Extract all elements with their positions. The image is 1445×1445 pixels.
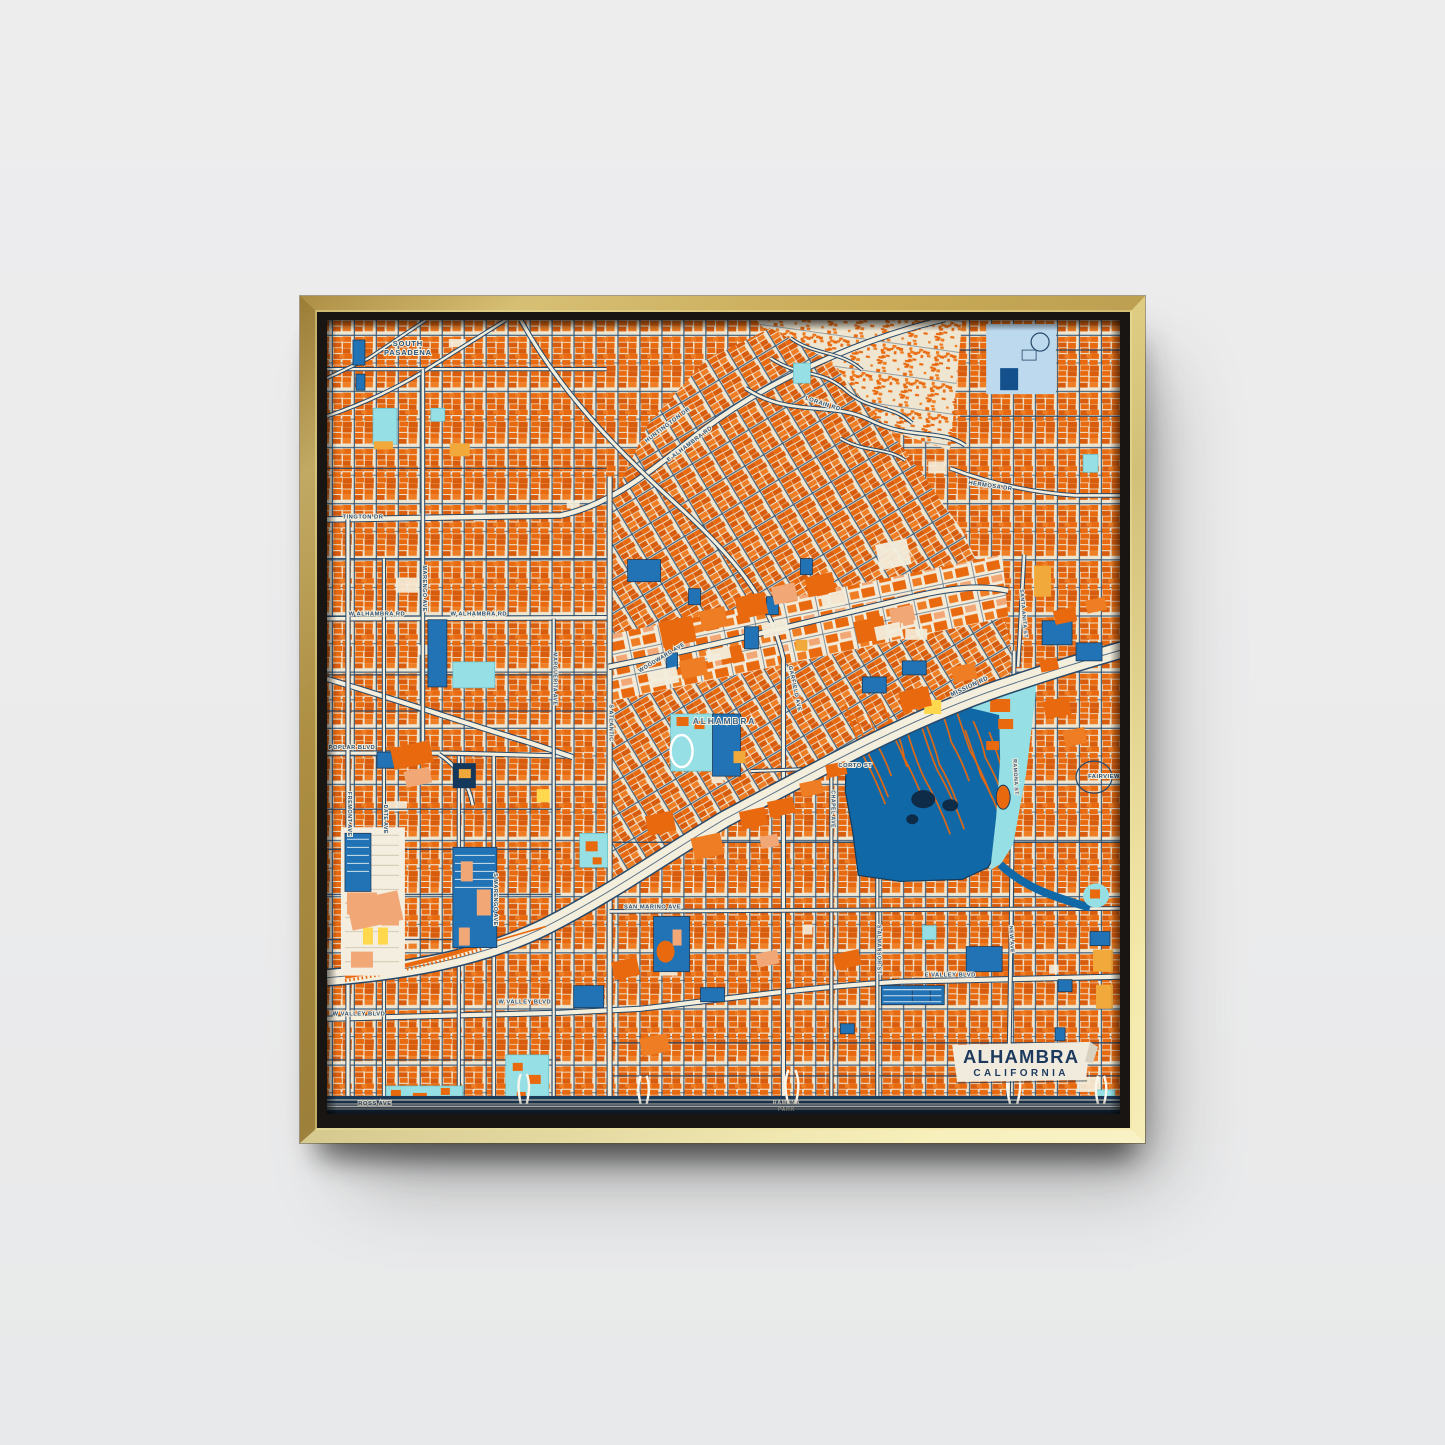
svg-text:PASADENA: PASADENA xyxy=(384,348,432,357)
svg-text:SAN MARINO AVE: SAN MARINO AVE xyxy=(624,904,681,910)
svg-text:W VALLEY BLVD: W VALLEY BLVD xyxy=(333,1012,386,1018)
svg-text:CHAPEL AVE: CHAPEL AVE xyxy=(829,790,835,828)
svg-text:S ALMANSOR ST: S ALMANSOR ST xyxy=(875,925,881,975)
svg-text:S ATLANTIC: S ATLANTIC xyxy=(608,704,614,741)
svg-text:CALIFORNIA: CALIFORNIA xyxy=(973,1068,1069,1079)
svg-text:W ALHAMBRA RD: W ALHAMBRA RD xyxy=(349,612,406,618)
svg-text:MARENGO AVE: MARENGO AVE xyxy=(421,565,427,612)
svg-text:E VALLEY BLVD: E VALLEY BLVD xyxy=(925,973,976,979)
svg-text:CORTO ST: CORTO ST xyxy=(838,763,872,769)
svg-text:TINGTON DR: TINGTON DR xyxy=(343,514,384,520)
svg-text:S MARENGO AVE: S MARENGO AVE xyxy=(492,873,498,926)
svg-text:DATE AVE: DATE AVE xyxy=(382,805,388,834)
svg-text:FREMONT AVE: FREMONT AVE xyxy=(346,792,352,837)
svg-text:ALHAMBRA: ALHAMBRA xyxy=(963,1046,1079,1067)
svg-text:MARGUERITA AVE: MARGUERITA AVE xyxy=(552,652,558,705)
svg-text:W VALLEY BLVD: W VALLEY BLVD xyxy=(498,1000,551,1006)
svg-text:ALHAMBRA: ALHAMBRA xyxy=(693,716,756,726)
svg-text:W ALHAMBRA RD: W ALHAMBRA RD xyxy=(451,612,508,618)
svg-text:SOUTH: SOUTH xyxy=(393,339,423,348)
